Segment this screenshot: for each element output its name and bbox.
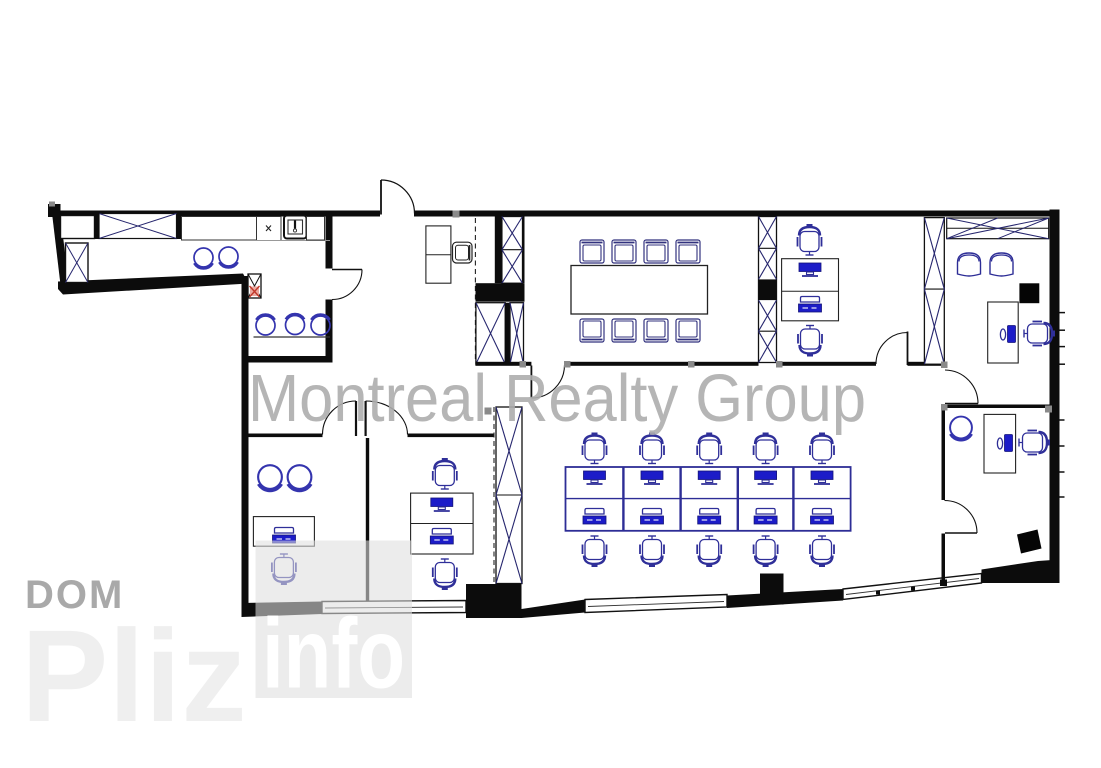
svg-text:Pliz: Pliz [21, 602, 247, 749]
svg-text:Montreal Realty Group: Montreal Realty Group [248, 361, 866, 436]
svg-text:info: info [262, 598, 405, 709]
